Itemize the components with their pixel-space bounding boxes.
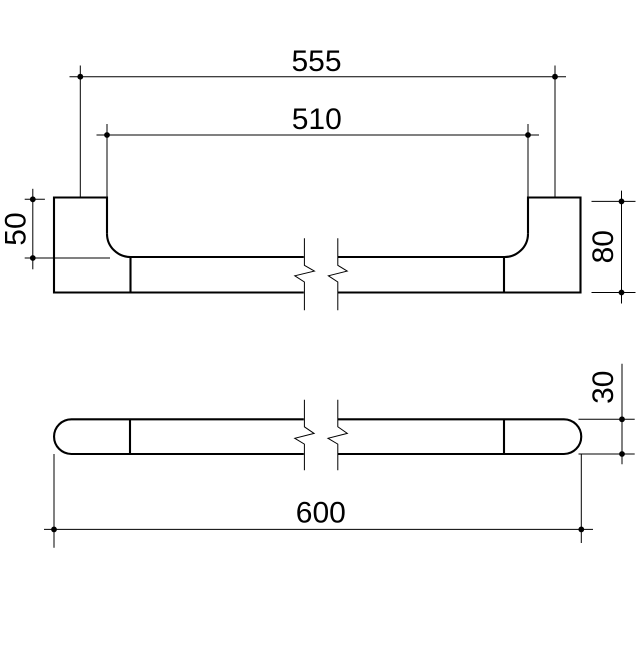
svg-text:600: 600 (296, 497, 346, 530)
svg-text:80: 80 (587, 230, 620, 263)
svg-text:510: 510 (292, 103, 342, 136)
svg-text:555: 555 (291, 45, 341, 78)
svg-text:30: 30 (587, 371, 620, 404)
svg-text:50: 50 (0, 212, 32, 245)
